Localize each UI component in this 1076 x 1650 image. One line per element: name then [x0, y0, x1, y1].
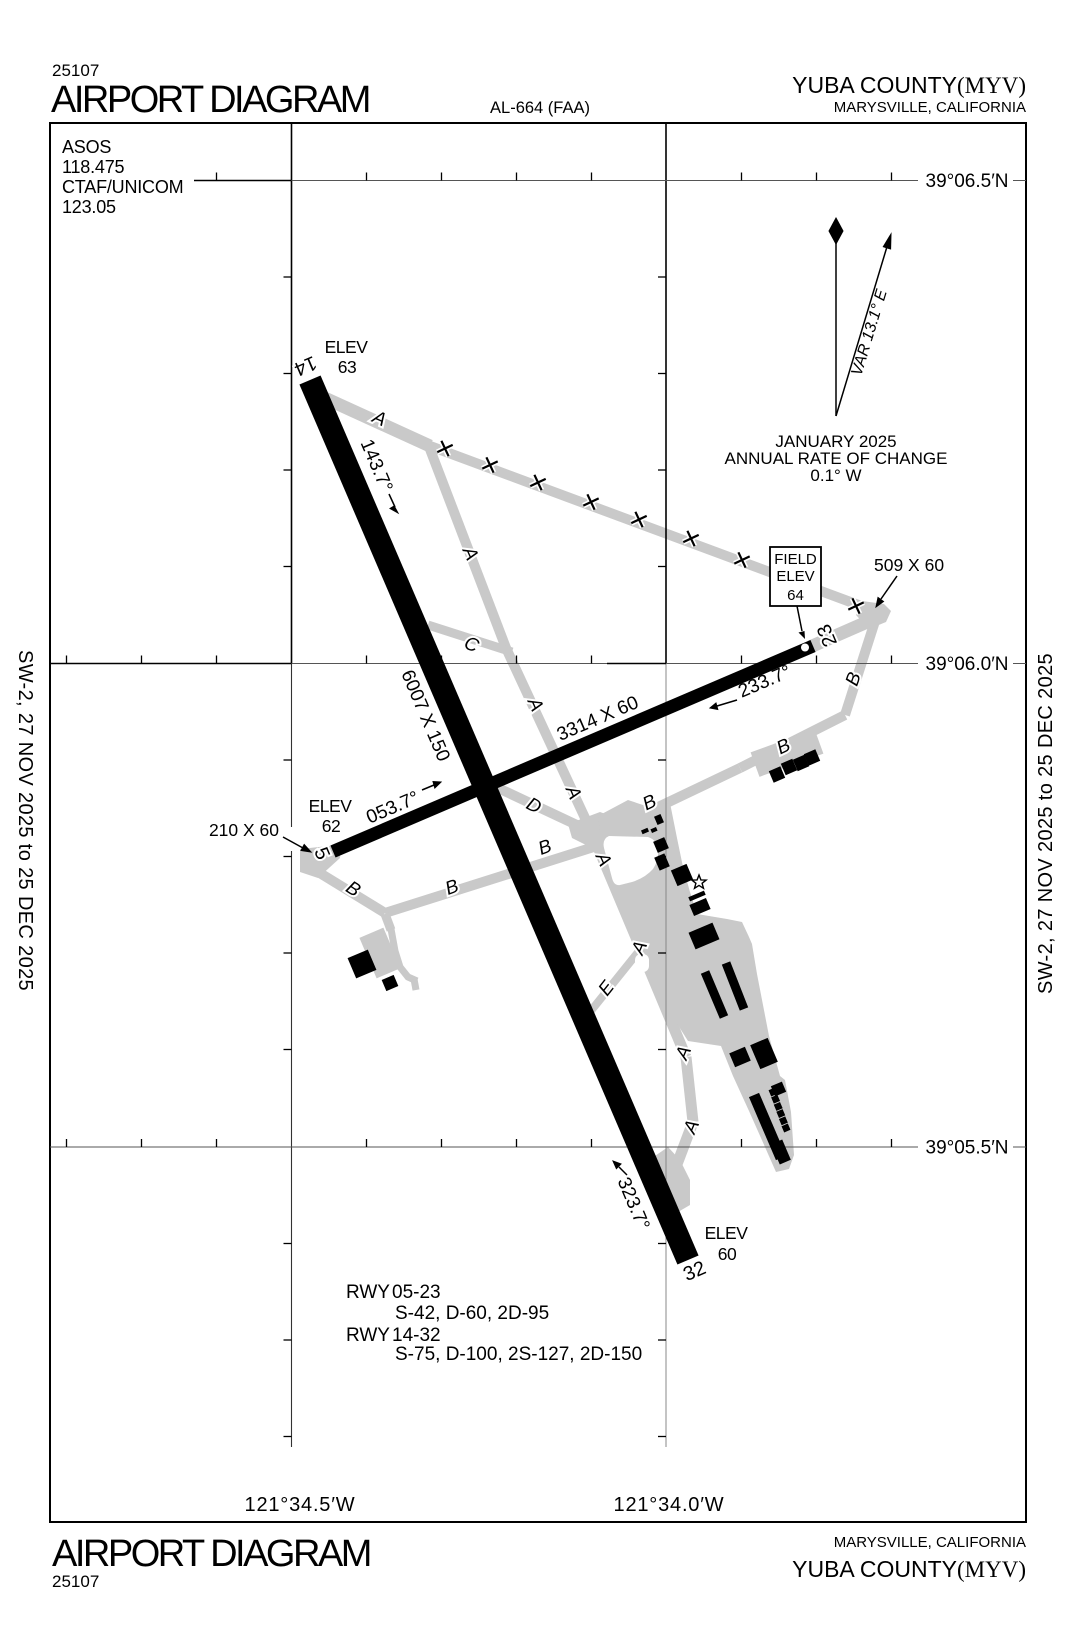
svg-text:509 X 60: 509 X 60 — [874, 555, 944, 575]
svg-text:B: B — [536, 836, 555, 860]
svg-text:0.1° W: 0.1° W — [810, 466, 861, 485]
svg-text:ELEV: ELEV — [309, 796, 353, 816]
svg-text:S-75, D-100, 2S-127, 2D-150: S-75, D-100, 2S-127, 2D-150 — [395, 1344, 642, 1365]
svg-text:210 X 60: 210 X 60 — [209, 820, 279, 840]
svg-text:VAR 13.1° E: VAR 13.1° E — [849, 287, 891, 378]
svg-text:63: 63 — [338, 357, 356, 377]
svg-text:RWY 14-32: RWY 14-32 — [346, 1325, 441, 1346]
svg-text:ELEV: ELEV — [705, 1223, 749, 1243]
svg-text:AIRPORT DIAGRAM: AIRPORT DIAGRAM — [51, 79, 369, 121]
svg-text:FIELD: FIELD — [774, 551, 817, 568]
svg-text:39°06.5′N: 39°06.5′N — [926, 171, 1009, 192]
svg-text:YUBA COUNTY(MYV): YUBA COUNTY(MYV) — [792, 72, 1026, 98]
svg-text:62: 62 — [322, 816, 340, 836]
svg-text:121°34.0′W: 121°34.0′W — [614, 1494, 725, 1516]
svg-text:MARYSVILLE, CALIFORNIA: MARYSVILLE, CALIFORNIA — [834, 99, 1026, 116]
svg-text:CTAF/UNICOM: CTAF/UNICOM — [62, 177, 183, 197]
svg-text:60: 60 — [718, 1244, 737, 1264]
svg-text:25107: 25107 — [52, 61, 99, 80]
svg-text:MARYSVILLE, CALIFORNIA: MARYSVILLE, CALIFORNIA — [834, 1534, 1026, 1551]
svg-text:RWY 05-23: RWY 05-23 — [346, 1282, 441, 1303]
svg-text:AIRPORT DIAGRAM: AIRPORT DIAGRAM — [52, 1533, 370, 1575]
svg-text:39°06.0′N: 39°06.0′N — [926, 654, 1009, 675]
svg-text:14: 14 — [291, 351, 320, 380]
svg-text:121°34.5′W: 121°34.5′W — [245, 1494, 356, 1516]
svg-text:YUBA COUNTY(MYV): YUBA COUNTY(MYV) — [792, 1556, 1026, 1582]
svg-text:118.475: 118.475 — [62, 157, 125, 177]
svg-text:AL-664 (FAA): AL-664 (FAA) — [490, 99, 590, 117]
svg-text:A: A — [457, 543, 482, 564]
svg-text:39°05.5′N: 39°05.5′N — [926, 1138, 1009, 1159]
svg-text:A: A — [671, 1043, 696, 1064]
svg-text:S-42, D-60, 2D-95: S-42, D-60, 2D-95 — [395, 1303, 549, 1324]
svg-text:64: 64 — [787, 587, 804, 604]
svg-text:SW-2, 27 NOV 2025 to 25 DEC: SW-2, 27 NOV 2025 to 25 DEC 2025 — [14, 650, 36, 991]
svg-text:25107: 25107 — [52, 1572, 99, 1591]
svg-text:ELEV: ELEV — [776, 568, 814, 585]
svg-text:ASOS: ASOS — [62, 137, 111, 157]
svg-text:SW-2, 27 NOV 2025 to 25 DEC: SW-2, 27 NOV 2025 to 25 DEC 2025 — [1035, 653, 1057, 994]
svg-text:ELEV: ELEV — [325, 337, 369, 357]
svg-text:123.05: 123.05 — [62, 197, 116, 217]
